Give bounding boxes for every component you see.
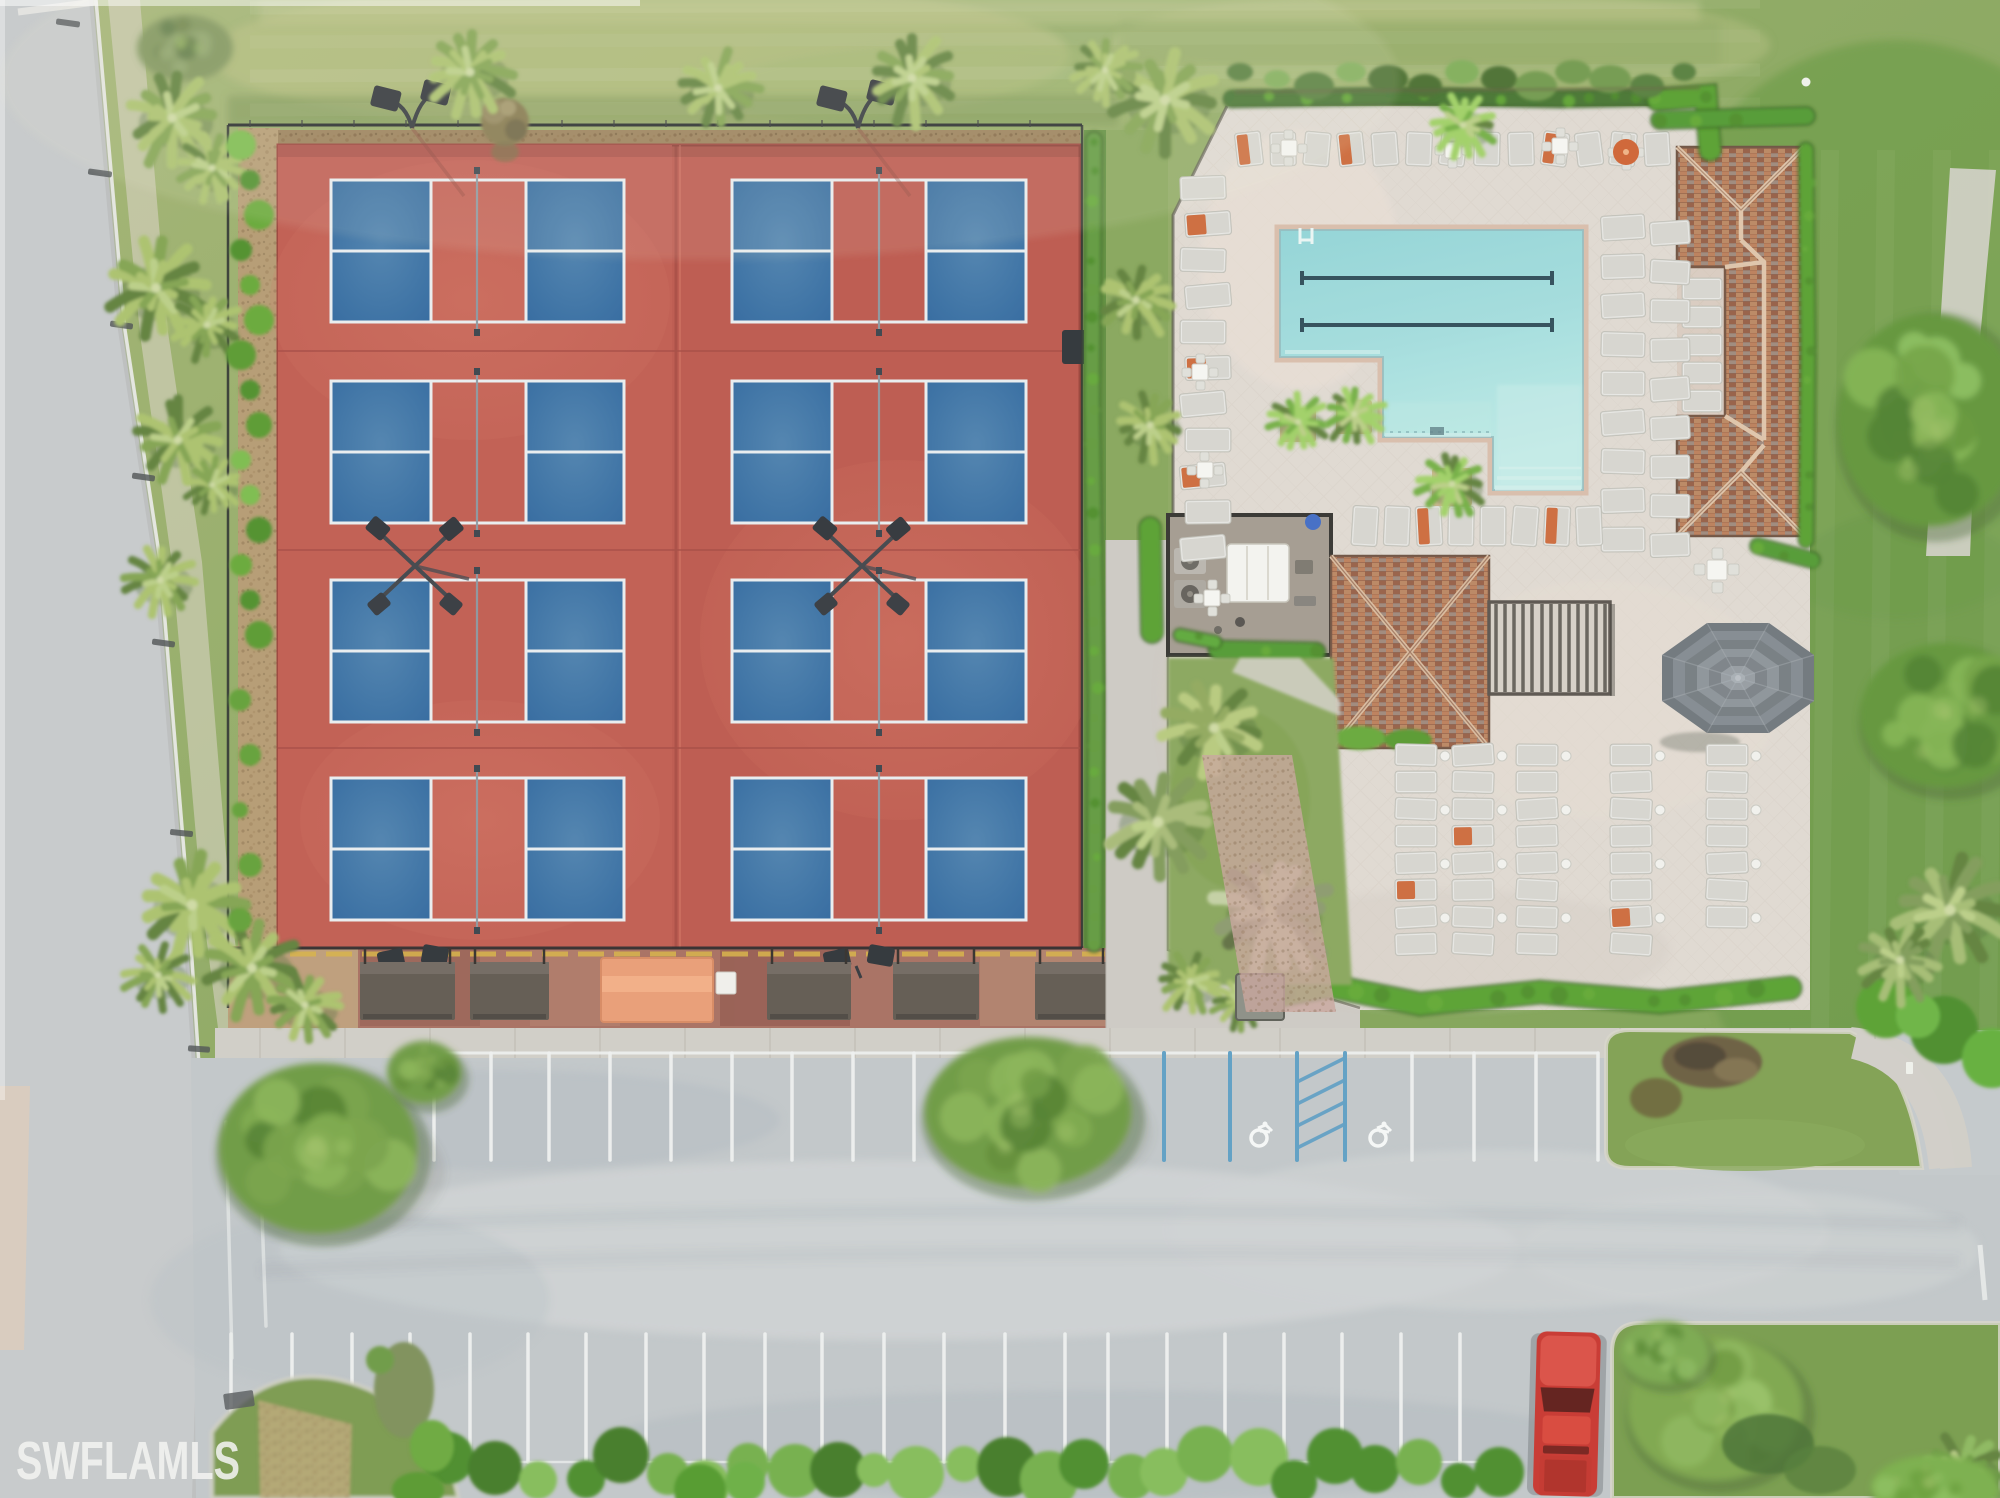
- svg-text:SWFLAMLS: SWFLAMLS: [16, 1431, 240, 1491]
